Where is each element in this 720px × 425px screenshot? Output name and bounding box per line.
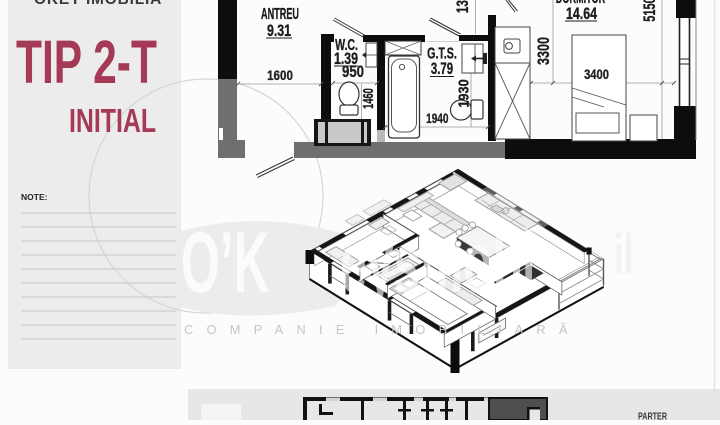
svg-text:1940: 1940 bbox=[426, 110, 449, 126]
svg-text:TIP 2-T: TIP 2-T bbox=[16, 28, 157, 96]
svg-text:NOTE:: NOTE: bbox=[21, 192, 48, 202]
svg-text:O’K: O’K bbox=[181, 214, 270, 311]
svg-text:1600: 1600 bbox=[267, 67, 293, 83]
svg-text:1930: 1930 bbox=[454, 79, 471, 108]
svg-text:INITIAL: INITIAL bbox=[69, 104, 156, 140]
svg-text:1310: 1310 bbox=[454, 0, 473, 13]
svg-text:3.79: 3.79 bbox=[431, 60, 453, 79]
svg-text:COMPANIE IMOBILIARĂ: COMPANIE IMOBILIARĂ bbox=[184, 322, 581, 337]
svg-text:3300: 3300 bbox=[534, 37, 553, 65]
svg-text:3400: 3400 bbox=[584, 67, 609, 82]
svg-text:PARTER: PARTER bbox=[638, 410, 668, 420]
svg-text:eysmobi: eysmobi bbox=[340, 214, 535, 310]
svg-text:1460: 1460 bbox=[360, 88, 377, 109]
svg-text:5150: 5150 bbox=[641, 0, 660, 22]
svg-text:950: 950 bbox=[342, 63, 364, 82]
svg-text:OKEY IMOBILIA: OKEY IMOBILIA bbox=[34, 0, 162, 8]
svg-text:il: il bbox=[614, 223, 633, 286]
svg-text:ANTREU: ANTREU bbox=[261, 4, 299, 22]
